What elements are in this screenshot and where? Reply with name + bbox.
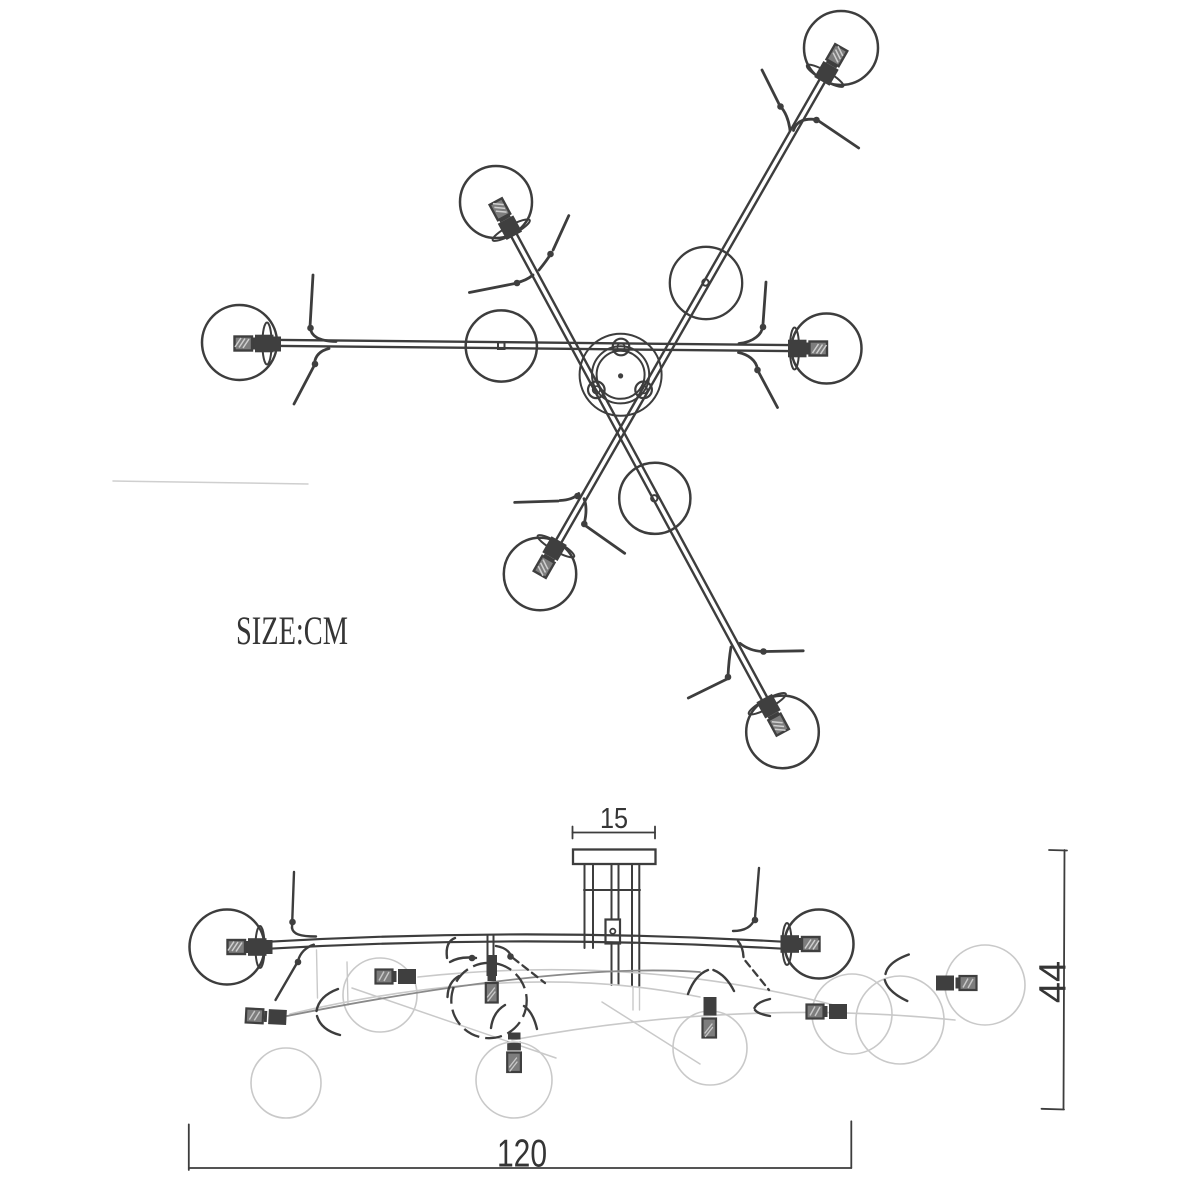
svg-text:120: 120 <box>497 1133 547 1175</box>
svg-text:44: 44 <box>1033 961 1075 1003</box>
svg-text:SIZE:CM: SIZE:CM <box>236 608 348 653</box>
svg-text:15: 15 <box>600 801 628 834</box>
